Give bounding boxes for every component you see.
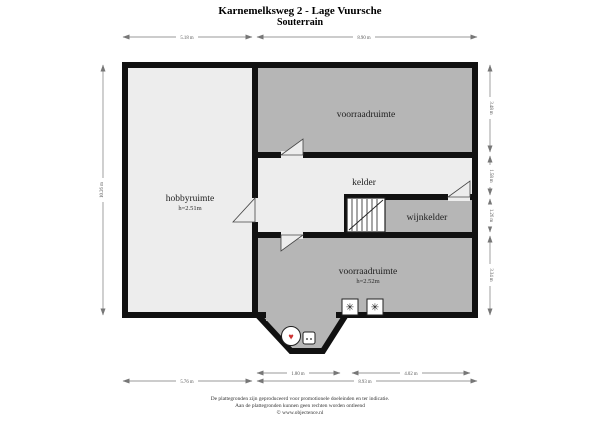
label-voorraadruimte-bottom: voorraadruimte (339, 267, 398, 277)
dim-bottom-inner-right: 4.02 m (352, 370, 470, 378)
page-title: Karnemelksweg 2 - Lage Vuursche (218, 5, 381, 17)
dim-label: 4.02 m (404, 372, 418, 377)
dim-right-3: 1.26 m (487, 199, 494, 232)
meter-dot (306, 338, 308, 340)
dim-right-4: 3.34 m (487, 236, 494, 315)
floorplan-canvas: Karnemelksweg 2 - Lage Vuursche Souterra… (0, 0, 600, 424)
bay-opening (266, 309, 336, 321)
dim-left: 10.26 m (100, 65, 107, 315)
dim-label: 1.26 m (488, 209, 493, 223)
label-wijnkelder: wijnkelder (407, 213, 448, 223)
dim-label: 8.90 m (357, 36, 371, 41)
staircase (347, 198, 385, 232)
dim-right-2: 1.58 m (487, 156, 494, 195)
washing-machine-glyph: ✳ (346, 303, 354, 314)
label-kelder: kelder (352, 178, 377, 188)
dim-label: 10.26 m (100, 182, 105, 198)
footer-line-2: Aan de plattegronden kunnen geen rechten… (235, 403, 365, 409)
room-hobbyruimte (125, 65, 255, 315)
dim-bottom-inner-left: 1.80 m (257, 370, 340, 378)
footer-line-1: De plattegronden zijn geproduceerd voor … (211, 396, 389, 402)
footer-line-3: © www.objectence.nl (277, 409, 324, 416)
dim-top-right: 8.90 m (257, 34, 477, 42)
boiler-heart-glyph: ♥ (288, 332, 293, 342)
label-hobbyruimte: hobbyruimte (166, 194, 215, 204)
dim-top-left: 5.18 m (123, 34, 252, 42)
dim-bottom-outer-left: 5.76 m (123, 378, 252, 386)
dim-bottom-outer-right: 8.93 m (257, 378, 477, 386)
dim-label: 1.80 m (291, 372, 305, 377)
dim-label: 5.76 m (180, 380, 194, 385)
page-subtitle: Souterrain (277, 17, 324, 28)
dim-right-1: 3.48 m (487, 65, 494, 152)
label-hobbyruimte-height: h=2.51m (178, 205, 201, 212)
floorplan: ✳ ✳ ♥ hobbyruimte h=2.51m voorraadruimte… (125, 65, 475, 351)
label-voorraadruimte-bottom-height: h=2.52m (356, 278, 379, 285)
meter-icon (303, 332, 315, 344)
dryer-glyph: ✳ (371, 303, 379, 314)
dim-label: 5.18 m (180, 36, 194, 41)
dim-label: 8.93 m (358, 380, 372, 385)
dim-label: 1.58 m (488, 169, 493, 183)
label-voorraadruimte-top: voorraadruimte (337, 110, 396, 120)
dim-label: 3.34 m (488, 268, 493, 282)
meter-dot (310, 338, 312, 340)
footer: De plattegronden zijn geproduceerd voor … (211, 396, 389, 416)
dim-label: 3.48 m (488, 101, 493, 115)
